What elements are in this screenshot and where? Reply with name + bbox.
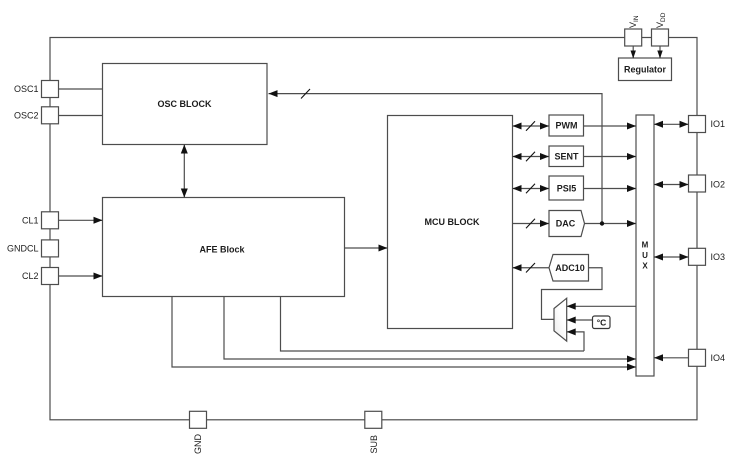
svg-text:IO4: IO4 bbox=[711, 353, 726, 363]
svg-text:DAC: DAC bbox=[556, 219, 576, 229]
svg-text:CL2: CL2 bbox=[22, 271, 39, 281]
svg-text:IO3: IO3 bbox=[711, 252, 726, 262]
svg-text:VIN: VIN bbox=[628, 15, 640, 28]
svg-text:GND: GND bbox=[193, 434, 203, 455]
svg-text:M: M bbox=[642, 241, 649, 250]
svg-text:OSC2: OSC2 bbox=[14, 111, 39, 121]
svg-text:OSC BLOCK: OSC BLOCK bbox=[158, 99, 213, 109]
svg-text:AFE Block: AFE Block bbox=[199, 244, 245, 254]
svg-text:°C: °C bbox=[597, 317, 607, 327]
svg-text:PWM: PWM bbox=[556, 121, 578, 131]
svg-text:IO1: IO1 bbox=[711, 119, 726, 129]
svg-text:Regulator: Regulator bbox=[624, 64, 667, 74]
svg-text:X: X bbox=[642, 261, 648, 270]
svg-text:GNDCL: GNDCL bbox=[7, 244, 39, 254]
svg-text:SENT: SENT bbox=[554, 152, 579, 162]
svg-text:IO2: IO2 bbox=[711, 180, 726, 190]
svg-text:MCU BLOCK: MCU BLOCK bbox=[425, 217, 480, 227]
svg-text:SUB: SUB bbox=[369, 435, 379, 454]
svg-text:VDD: VDD bbox=[655, 12, 667, 28]
svg-text:ADC10: ADC10 bbox=[555, 263, 585, 273]
svg-text:CL1: CL1 bbox=[22, 216, 39, 226]
svg-text:U: U bbox=[642, 251, 648, 260]
svg-text:OSC1: OSC1 bbox=[14, 84, 39, 94]
svg-text:PSI5: PSI5 bbox=[557, 183, 577, 193]
